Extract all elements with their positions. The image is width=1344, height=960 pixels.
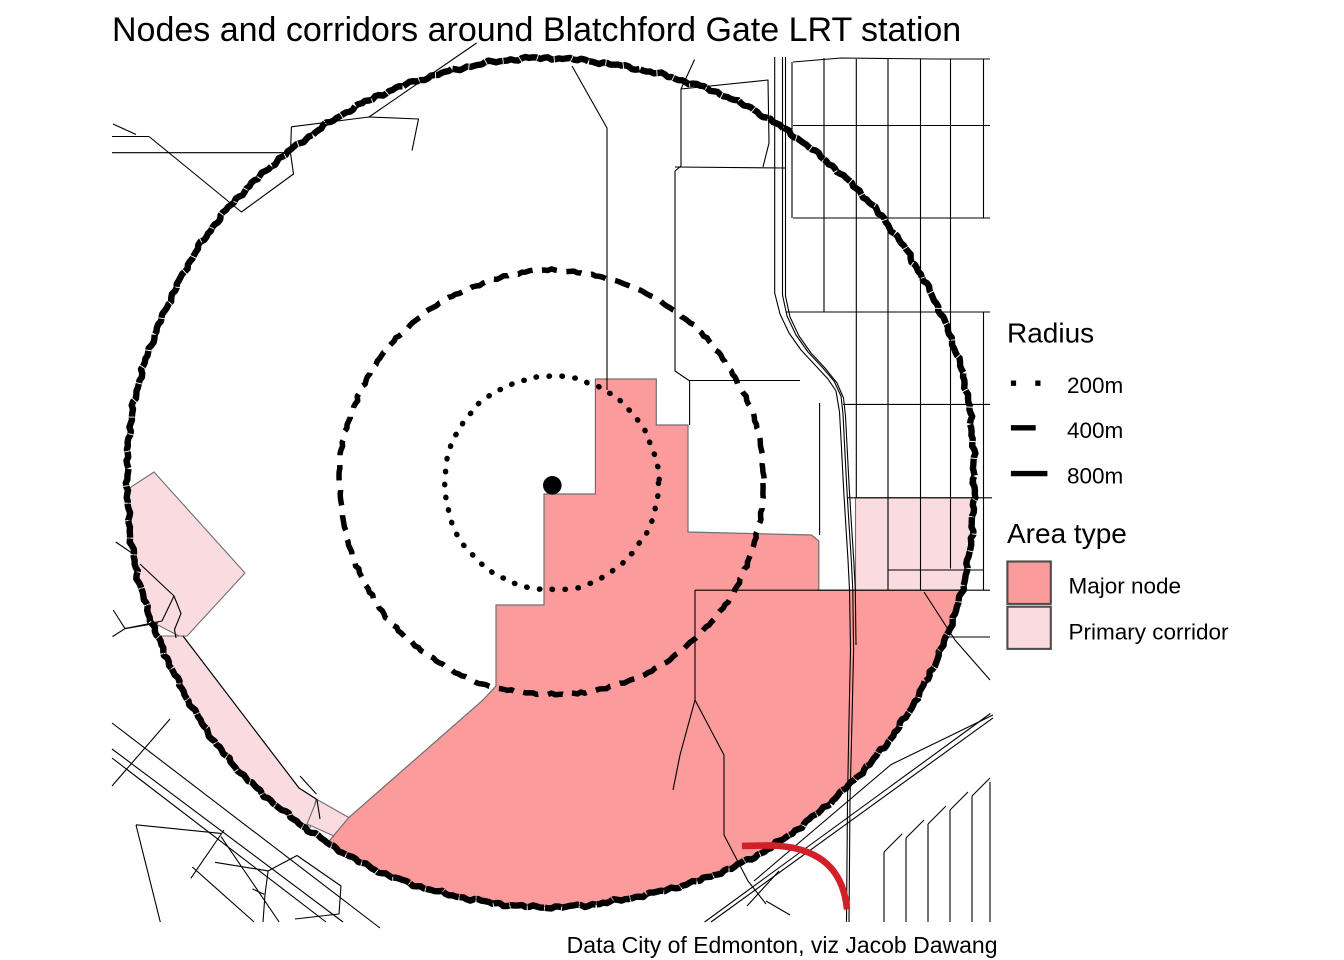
- svg-text:Data City of Edmonton, viz Jac: Data City of Edmonton, viz Jacob Dawang: [567, 932, 998, 958]
- svg-text:Area type: Area type: [1007, 518, 1127, 549]
- svg-text:Nodes and corridors around Bla: Nodes and corridors around Blatchford Ga…: [112, 11, 961, 49]
- svg-text:Major node: Major node: [1069, 574, 1182, 599]
- svg-text:400m: 400m: [1067, 418, 1123, 443]
- svg-text:Radius: Radius: [1007, 318, 1094, 349]
- svg-text:Primary corridor: Primary corridor: [1069, 620, 1230, 645]
- svg-text:200m: 200m: [1067, 373, 1123, 398]
- svg-text:800m: 800m: [1067, 463, 1123, 488]
